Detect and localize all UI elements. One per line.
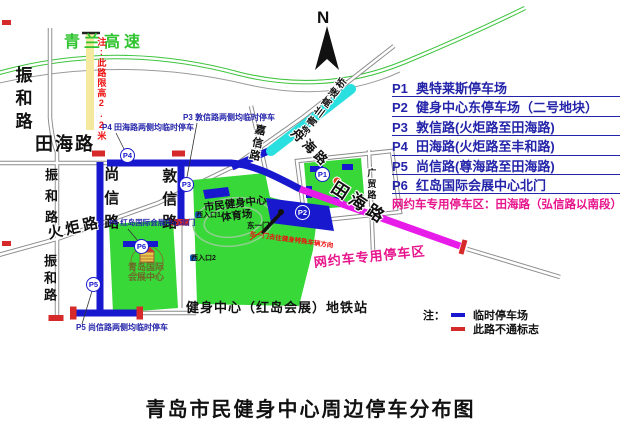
east-gate-label: 东一门 bbox=[247, 222, 270, 231]
road-label-zhenhe-mid: 振和路 bbox=[42, 168, 57, 231]
legend-code: P4 bbox=[392, 140, 416, 154]
map-key-row-temp: 注： 临时停车场 bbox=[423, 308, 539, 322]
closed-road-bar-icon bbox=[451, 327, 465, 332]
legend-desc: 敦信路(火炬路至田海路) bbox=[416, 121, 555, 135]
map-key-prefix: 注： bbox=[423, 307, 445, 323]
legend-desc: 红岛国际会展中心北门 bbox=[416, 179, 546, 193]
road-label-tianhai-west: 田海路 bbox=[35, 134, 95, 155]
parking-map-page: 青兰高速 振和路 注:此路限高2.2米 田海路 振和路 振和路 尚信路 敦信路 … bbox=[0, 0, 621, 438]
parking-marker-p3: P3 bbox=[179, 177, 194, 192]
legend-item-p6: P6 红岛国际会展中心北门 bbox=[392, 175, 620, 194]
legend-desc: 尚信路(尊海路至田海路) bbox=[416, 160, 555, 174]
legend-code: P5 bbox=[392, 160, 416, 174]
road-label-zhenhe-south: 振和路 bbox=[41, 254, 56, 305]
parking-marker-p4: P4 bbox=[120, 148, 135, 163]
parking-marker-p6: P6 bbox=[134, 239, 149, 254]
p4-parking-note: P4 田海路两侧均临时停车 bbox=[102, 123, 194, 132]
ride-hailing-reserved-note: 网约车专用停车区：田海路（弘信路以南段） bbox=[392, 196, 621, 212]
legend-desc: 奥特莱斯停车场 bbox=[416, 82, 507, 96]
expo-label-line1: 青岛国际 bbox=[118, 262, 174, 272]
legend-item-p1: P1 奥特莱斯停车场 bbox=[392, 78, 620, 97]
parking-marker-p2: P2 bbox=[295, 205, 310, 220]
legend-item-p5: P5 尚信路(尊海路至田海路) bbox=[392, 156, 620, 175]
legend-code: P3 bbox=[392, 121, 416, 135]
map-key: 注： 临时停车场 注： 此路不通标志 bbox=[423, 308, 539, 336]
p3-parking-note: P3 敦信路两侧均临时停车 bbox=[183, 113, 275, 122]
page-title: 青岛市民健身中心周边停车分布图 bbox=[0, 393, 621, 422]
p6-parking-note: P6 红岛国际会展中心北门 bbox=[109, 219, 195, 228]
temp-parking-bar-icon bbox=[451, 313, 465, 318]
legend-code: P6 bbox=[392, 179, 416, 193]
p5-parking-note: P5 尚信路两侧均临时停车 bbox=[76, 323, 168, 332]
legend-item-p4: P4 田海路(火炬路至丰和路) bbox=[392, 136, 620, 155]
road-label-guangmao: 广贸路 bbox=[366, 168, 376, 201]
expo-label-line2: 会展中心 bbox=[118, 272, 174, 282]
parking-marker-p5: P5 bbox=[86, 277, 101, 292]
metro-entrance2-label: 西入口2 bbox=[191, 255, 216, 263]
legend-desc: 健身中心东停车场（二号地块） bbox=[416, 101, 598, 115]
metro-station-label: 健身中心（红岛会展）地铁站 bbox=[186, 301, 368, 316]
road-label-zhenhe-north: 振和路 bbox=[12, 66, 32, 135]
legend-item-p2: P2 健身中心东停车场（二号地块） bbox=[392, 97, 620, 116]
closed-road-label: 此路不通标志 bbox=[473, 321, 539, 337]
legend-panel: P1 奥特莱斯停车场 P2 健身中心东停车场（二号地块） P3 敦信路(火炬路至… bbox=[392, 78, 620, 194]
legend-code: P2 bbox=[392, 101, 416, 115]
expo-center-label: 青岛国际 会展中心 bbox=[118, 262, 174, 283]
legend-desc: 田海路(火炬路至丰和路) bbox=[416, 140, 555, 154]
map-key-row-closed: 注： 此路不通标志 bbox=[423, 322, 539, 336]
parking-marker-p1: P1 bbox=[315, 167, 330, 182]
legend-item-p3: P3 敦信路(火炬路至田海路) bbox=[392, 117, 620, 136]
metro-entrance1-label: 西入口1 bbox=[196, 212, 221, 220]
compass-north-label: N bbox=[317, 8, 329, 28]
legend-code: P1 bbox=[392, 82, 416, 96]
north-arrow-icon bbox=[315, 26, 339, 70]
